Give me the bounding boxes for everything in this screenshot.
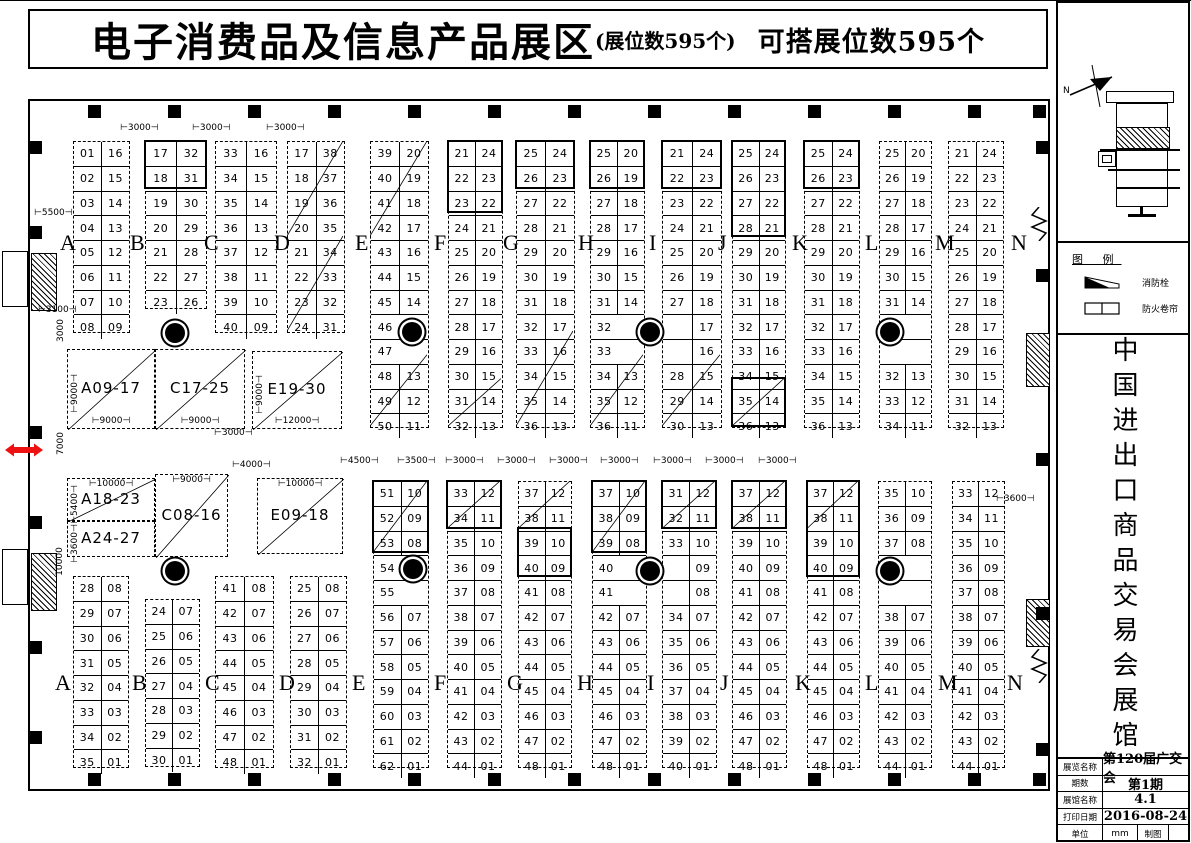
wall-column [568,773,581,786]
aisle-letter-top-F: F [434,232,446,254]
booth-cell: 16 [977,340,1004,364]
booth-cell: 37 [593,482,620,506]
field-label: 制图 [1138,825,1169,842]
booth-row: 0710 [74,290,129,315]
booth-cell: 27 [663,291,693,315]
booth-cell: 22 [288,266,317,290]
booth-cell: 21 [693,216,722,240]
booth-row: 2619 [449,265,502,290]
field-label: 期数 [1058,776,1103,792]
booth-row: 2623 [805,166,859,191]
booth-cell: 31 [949,390,977,414]
booth-row: 4504 [593,679,646,704]
booth-cell: 41 [216,577,245,601]
booth-cell: 13 [247,216,277,240]
booth-cell: 06 [620,631,646,655]
booth-row: 2623 [733,166,785,191]
booth-row: 3415 [216,166,276,191]
booth-cell: 02 [620,730,646,754]
booth-cell: 26 [663,266,693,290]
booth-row: 3811 [216,265,276,290]
booth-cell: 45 [733,680,760,704]
aisle-letter-top-H: H [578,232,594,254]
booth-row: 2817 [880,215,931,240]
booth-cell: 47 [808,730,834,754]
booth-row: 3613 [216,215,276,240]
booth-row: 3411 [880,413,931,438]
booth-row: 3015 [449,364,502,389]
booth-cell: 17 [906,216,931,240]
wall-column [1036,743,1049,756]
booth-row: 2506 [146,624,199,649]
booth-cell: 61 [374,730,402,754]
booth-block-bottom-I: 3112321133100908340735063605370438033902… [662,481,717,768]
booth-cell [905,556,931,580]
booth-cell: 30 [880,266,906,290]
booth-cell: 07 [620,606,646,630]
booth-cell: 39 [953,631,979,655]
booth-cell: 17 [476,315,502,339]
booth-row: 4207 [216,601,273,626]
fire-hydrant-icon [1084,275,1120,289]
booth-cell: 24 [663,216,693,240]
dimension-label: ⊢10000⊣ [68,480,154,489]
field-label: 单位 [1058,825,1103,842]
booth-cell: 02 [475,730,501,754]
booth-cell: 04 [173,674,199,698]
booth-cell: 22 [833,192,860,216]
floorplan-page: { "header": { "main_title": "电子消费品及信息产品展… [0,0,1191,843]
booth-row: 3015 [880,265,931,290]
booth-row: 4306 [216,626,273,651]
booth-row: 2815 [663,364,721,389]
booth-row: 3613 [805,413,859,438]
booth-cell: 22 [476,192,502,216]
booth-cell: 27 [591,192,618,216]
booth-cell: 37 [733,482,760,506]
buildable-count-note: 可搭展位数595个 [758,20,985,59]
booth-cell: 62 [374,754,402,778]
booth-row: 4104 [448,679,501,704]
booth-row: 2805 [291,650,346,675]
booth-cell: 16 [102,142,129,166]
booth-row: 2520 [663,240,721,265]
special-booth-label: A18-23 [68,490,154,508]
booth-cell: 20 [977,241,1004,265]
booth-cell: 30 [146,749,173,773]
wall-column [1033,773,1046,786]
booth-row: 3514 [805,389,859,414]
booth-cell: 19 [546,266,574,290]
wall-column [408,773,421,786]
dimension-label: ⊢3000⊣ [705,457,744,466]
booth-cell: 21 [663,142,693,166]
booth-cell: 43 [879,730,906,754]
aisle-letter-top-J: J [718,232,727,254]
booth-cell: 46 [808,705,834,729]
aisle-letter-bottom-I: I [647,672,654,694]
booth-cell: 05 [620,655,646,679]
booth-cell [400,340,429,364]
booth-row: 2902 [146,723,199,748]
booth-cell: 56 [374,606,402,630]
booth-cell: 23 [476,167,502,191]
booth-row: 3613 [517,413,574,438]
booth-row: 2124 [949,142,1003,166]
booth-cell: 23 [146,291,177,315]
booth-cell: 07 [245,602,273,626]
special-booth-label: E19-30 [253,380,341,398]
booth-block-bottom-C: 41084207430644054504460347024801 [215,576,274,768]
booth-row: 4203 [879,704,931,729]
booth-cell: 08 [906,532,932,556]
booth-cell: 05 [690,655,716,679]
booth-block-top-K: 2524262327222821292030193118321733163415… [804,141,860,428]
wall-column [1033,105,1046,118]
booth-cell: 19 [693,266,722,290]
booth-cell: 45 [216,676,245,700]
booth-cell: 07 [690,606,716,630]
north-label: N [1063,86,1070,96]
booth-cell: 38 [593,507,620,531]
booth-cell: 04 [620,680,646,704]
booth-row: 4108 [519,580,571,605]
booth-cell: 10 [620,482,646,506]
booth-cell: 19 [288,192,317,216]
booth-cell: 31 [177,167,207,191]
booth-cell: 28 [880,216,906,240]
table-row: 期数 第1期 [1058,776,1188,793]
booth-cell: 05 [173,650,199,674]
booth-cell: 23 [760,167,786,191]
booth-cell: 09 [102,315,129,339]
booth-cell: 04 [402,680,429,704]
booth-cell: 22 [693,192,722,216]
booth-row: 4603 [593,704,646,729]
booth-cell: 41 [879,680,906,704]
booth-cell: 26 [449,266,476,290]
booth-cell: 07 [475,606,501,630]
booth-cell: 06 [546,631,572,655]
booth-row: 1738 [288,142,344,166]
booth-cell: 34 [74,726,102,750]
aisle-letter-bottom-L: L [865,672,878,694]
booth-cell: 06 [402,631,429,655]
booth-row: 4005 [953,654,1004,679]
aisle-letter-top-N: N [1011,232,1027,254]
aisle-letter-bottom-D: D [279,672,295,694]
booth-cell: 22 [449,167,476,191]
booth-cell: 21 [288,241,317,265]
booth-cell: 28 [177,241,207,265]
booth-cell: 27 [517,192,546,216]
booth-cell: 60 [374,705,402,729]
booth-row: 2619 [949,265,1003,290]
booth-cell: 23 [693,167,722,191]
booth-cell: 03 [979,705,1004,729]
booth-cell: 36 [448,556,475,580]
aisle-letter-bottom-B: B [132,672,147,694]
booth-row: 4104 [953,679,1004,704]
booth-cell: 42 [808,606,834,630]
booth-cell: 03 [834,705,859,729]
booth-cell: 17 [618,216,644,240]
wall-column [488,773,501,786]
booth-row: 5209 [374,506,428,531]
booth-row: 08 [663,580,716,605]
booth-row: 4302 [879,729,931,754]
booth-cell: 26 [177,291,207,315]
booth-cell: 05 [834,655,859,679]
booth-cell: 04 [102,676,129,700]
booth-cell: 05 [906,655,932,679]
booth-cell: 34 [805,365,833,389]
fire-shutter-icon [1084,301,1120,315]
booth-cell: 54 [374,556,401,580]
booth-cell: 44 [593,655,620,679]
booth-row: 0512 [74,240,129,265]
booth-cell [401,581,428,605]
booth-row: 3316 [216,142,276,166]
booth-row: 3019 [805,265,859,290]
booth-row: 3609 [879,506,931,531]
booth-row: 3514 [216,191,276,216]
booth-cell: 24 [546,142,574,166]
booth-row: 3114 [880,290,931,315]
booth-cell: 28 [74,577,102,601]
booth-row: 4306 [808,630,859,655]
booth-cell: 25 [591,142,618,166]
booth-cell: 25 [449,241,476,265]
booth-row: 2332 [288,290,344,315]
booth-row: 4405 [808,654,859,679]
booth-cell: 14 [618,291,644,315]
booth-cell: 41 [593,581,620,605]
booth-cell: 12 [247,241,277,265]
booth-cell: 28 [146,699,173,723]
aisle-letter-bottom-M: M [938,672,958,694]
wall-column [728,105,741,118]
wall-column [328,773,341,786]
booth-row: 3411 [448,506,501,531]
booth-cell: 41 [371,192,400,216]
booth-cell: 39 [448,631,475,655]
booth-cell: 01 [906,754,932,778]
booth-cell: 32 [291,750,319,774]
booth-cell: 41 [448,680,475,704]
booth-cell: 02 [245,726,273,750]
booth-cell: 32 [177,142,207,166]
booth-cell [880,340,906,364]
booth-row: 4009 [519,555,571,580]
wall-column [29,731,42,744]
field-value: 第1期 [1103,776,1188,792]
booth-row: 4019 [371,166,428,191]
booth-cell: 08 [546,581,572,605]
booth-cell: 37 [953,581,979,605]
booth-cell: 38 [448,606,475,630]
booth-cell: 02 [690,730,716,754]
wall-column [888,105,901,118]
booth-row: 0215 [74,166,129,191]
booth-row: 3902 [663,729,716,754]
booth-row: 4203 [953,704,1004,729]
booth-cell: 27 [146,674,173,698]
booth-row: 3708 [879,531,931,556]
booth-row: 3510 [879,482,931,506]
booth-row: 4603 [733,704,786,729]
booth-cell: 42 [448,705,475,729]
booth-cell: 23 [546,167,574,191]
booth-row: 3501 [74,749,128,774]
table-row: 单位 mm 制图 [1058,825,1188,842]
booth-row: 3712 [216,240,276,265]
booth-row: 4302 [953,729,1004,754]
booth-row: 41 [593,580,646,605]
booth-cell: 28 [733,216,760,240]
booth-cell: 21 [833,216,860,240]
booth-row: 3506 [663,630,716,655]
booth-cell: 30 [74,627,102,651]
wall-column [29,226,42,239]
booth-cell: 26 [880,167,906,191]
booth-cell: 06 [102,627,129,651]
booth-row: 2623 [517,166,574,191]
booth-cell: 05 [402,655,429,679]
booth-cell: 40 [593,556,620,580]
booth-cell: 25 [517,142,546,166]
booth-cell: 29 [74,602,102,626]
booth-cell: 09 [906,507,932,531]
booth-cell: 02 [546,730,572,754]
booth-row: 2907 [74,601,128,626]
booth-row: 3712 [733,482,786,506]
booth-cell: 06 [760,631,786,655]
booth-cell: 24 [476,142,502,166]
booth-row: 3704 [663,679,716,704]
booth-cell: 35 [953,532,979,556]
booth-cell: 35 [216,192,247,216]
booth-cell: 40 [663,754,690,778]
column-icon [165,561,185,581]
booth-block-top-C: 33163415351436133712381139104009 [215,141,277,333]
booth-row: 3411 [953,506,1004,531]
dimension-label: ⊢3100⊣ [38,306,77,315]
booth-cell: 33 [663,532,690,556]
booth-cell: 40 [733,556,760,580]
booth-row: 3415 [805,364,859,389]
booth-cell: 36 [953,556,979,580]
booth-row: 3413 [591,364,644,389]
booth-cell: 17 [288,142,317,166]
booth-cell: 06 [74,266,102,290]
booth-cell: 40 [216,315,247,339]
booth-cell: 35 [517,390,546,414]
wall-column [29,516,42,529]
booth-cell: 11 [102,266,129,290]
booth-cell: 32 [591,315,618,339]
booth-row: 2817 [591,215,644,240]
booth-row: 3906 [953,630,1004,655]
booth-cell: 18 [833,291,860,315]
title-block-table: 展览名称 第120届广交会 期数 第1期 展馆名称 4.1 打印日期 2016-… [1058,759,1188,842]
booth-cell: 50 [371,414,400,438]
booth-cell: 25 [880,142,906,166]
booth-cell: 30 [449,365,476,389]
column-icon [880,322,900,342]
booth-cell [879,581,905,605]
booth-cell: 02 [979,730,1004,754]
booth-cell: 20 [400,142,428,166]
booth-cell: 13 [102,216,129,240]
booth-cell: 15 [693,365,722,389]
dimension-label: ⊢3000⊣ [497,457,536,466]
booth-cell: 05 [319,651,346,675]
booth-cell: 14 [833,390,860,414]
booth-cell: 39 [216,291,247,315]
escalator-icon [1026,333,1050,387]
booth-cell: 40 [879,655,906,679]
booth-cell: 51 [374,482,402,506]
booth-cell: 29 [146,724,173,748]
booth-cell: 11 [475,507,501,531]
booth-cell: 35 [448,532,475,556]
booth-cell: 30 [663,414,693,438]
booth-row: 3712 [808,482,859,506]
booth-cell: 33 [74,701,102,725]
booth-cell: 46 [216,701,245,725]
booth-cell: 01 [102,750,129,774]
booth-cell: 47 [593,730,620,754]
booth-cell: 29 [591,241,618,265]
booth-cell: 38 [216,266,247,290]
booth-row: 4504 [808,679,859,704]
booth-row: 3015 [591,265,644,290]
booth-row: 3211 [663,506,716,531]
booth-cell: 20 [693,241,722,265]
wall-column [29,426,42,439]
booth-cell: 13 [693,414,722,438]
booth-cell: 57 [374,631,402,655]
booth-cell: 24 [146,600,173,624]
booth-cell: 09 [979,556,1004,580]
dimension-label: ⊢9000⊣ [256,375,265,414]
booth-cell: 10 [402,482,429,506]
booth-cell: 10 [475,532,501,556]
booth-cell: 13 [833,414,860,438]
booth-cell [663,340,693,364]
booth-row: 3803 [663,704,716,729]
booth-row: 3118 [517,290,574,315]
field-label: 打印日期 [1058,809,1103,825]
wall-column [648,773,661,786]
booth-cell: 17 [146,142,177,166]
booth-cell: 03 [74,192,102,216]
booth-row: 2520 [591,142,644,166]
booth-row: 3217 [517,314,574,339]
dimension-label: ⊢9000⊣ [68,417,154,426]
booth-cell: 07 [173,600,199,624]
booth-row: 6003 [374,704,428,729]
booth-row: 2821 [517,215,574,240]
booth-block-bottom-A: 28082907300631053204330334023501 [73,576,129,768]
booth-row: 3910 [519,531,571,556]
booth-cell: 01 [319,750,346,774]
wall-column [29,641,42,654]
booth-cell: 29 [517,241,546,265]
booth-row: 3512 [591,389,644,414]
booth-cell: 38 [317,142,345,166]
